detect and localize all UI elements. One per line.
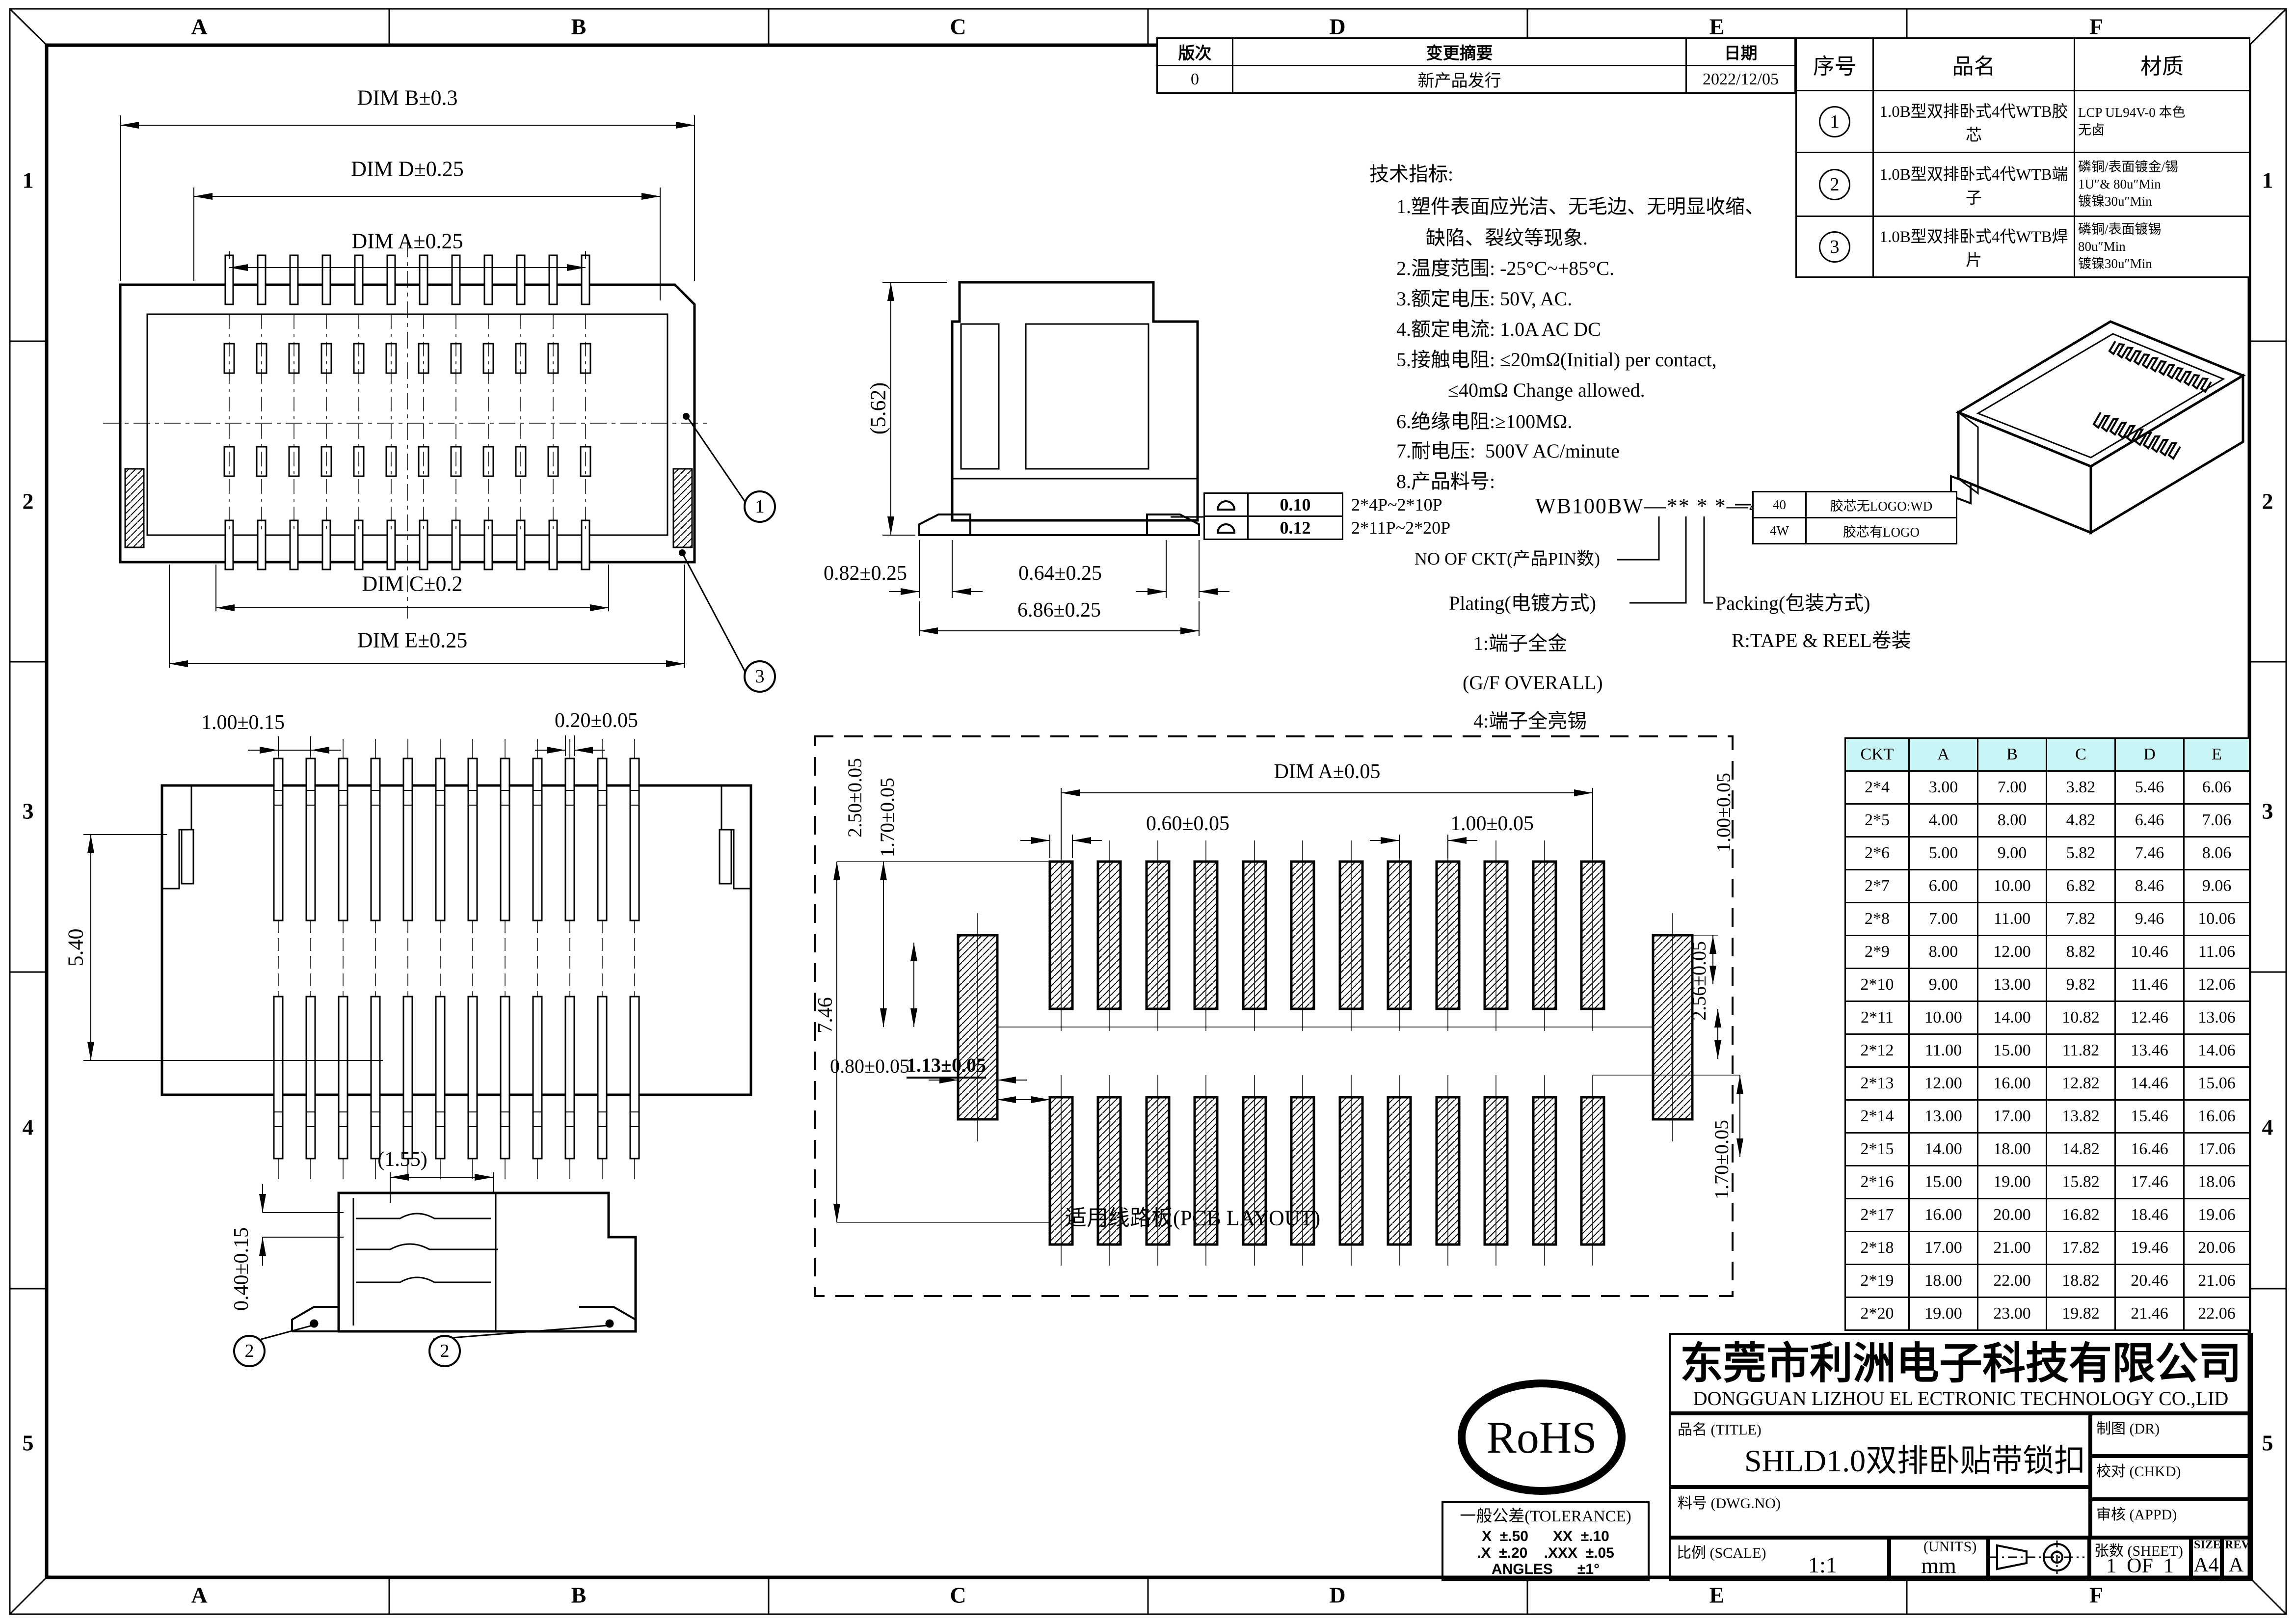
zone-letter-top: E — [1709, 14, 1725, 40]
zone-letter-bottom: A — [191, 1583, 207, 1609]
tolerance-line: X ±.50 XX ±.10 — [1482, 1528, 1609, 1545]
tolerance-title: 一般公差(TOLERANCE) — [1460, 1508, 1631, 1526]
rohs-logo: RoHS — [1458, 1380, 1626, 1495]
dim-label: DIM C±0.2 — [362, 572, 462, 597]
table-cell: 16.46 — [2115, 1133, 2184, 1166]
side-view-drawing — [919, 282, 1199, 535]
table-cell: 2*14 — [1845, 1100, 1909, 1133]
balloon-2: 2 — [428, 1335, 461, 1367]
dim-label: 0.40±0.15 — [230, 1227, 253, 1311]
tech-spec-line: 2.温度范围: -25°C~+85°C. — [1396, 257, 1614, 280]
zone-letter-top: A — [191, 14, 207, 40]
third-angle-projection-icon — [1988, 1538, 2086, 1576]
zone-letter-top: D — [1329, 14, 1345, 40]
table-cell: 2022/12/05 — [1686, 66, 1795, 93]
table-cell: 2*10 — [1845, 969, 1909, 1001]
dim-label: (5.62) — [866, 382, 891, 434]
table-cell: 14.06 — [2184, 1034, 2250, 1067]
table-cell: 14.82 — [2047, 1133, 2115, 1166]
chkd-label: 校对 (CHKD) — [2096, 1459, 2181, 1481]
zone-number-left: 1 — [23, 168, 34, 194]
table-cell: 2*16 — [1845, 1166, 1909, 1199]
table-cell: 2*5 — [1845, 804, 1909, 837]
tech-spec-line: 5.接触电阻: ≤20mΩ(Initial) per contact, — [1396, 349, 1717, 371]
table-cell: 22.00 — [1978, 1265, 2047, 1298]
top-view-drawing — [103, 241, 712, 619]
isometric-view-drawing — [1951, 322, 2243, 533]
table-cell: 15.00 — [1909, 1166, 1978, 1199]
table-cell: 11.46 — [2115, 969, 2184, 1001]
table-cell: 16.00 — [1978, 1067, 2047, 1100]
table-cell: 15.46 — [2115, 1100, 2184, 1133]
table-cell: 15.00 — [1978, 1034, 2047, 1067]
section-view-drawing — [292, 1193, 636, 1331]
engineering-drawing-sheet: A B C D E F A B C D E F 1 2 3 4 5 1 2 3 … — [0, 0, 2296, 1623]
table-header-cell: E — [2184, 738, 2250, 771]
dim-label: DIM A±0.05 — [1274, 760, 1381, 784]
table-cell: 15.82 — [2047, 1166, 2115, 1199]
table-cell: 11.06 — [2184, 936, 2250, 969]
table-cell: 12.00 — [1909, 1067, 1978, 1100]
table-cell: 13.82 — [2047, 1100, 2115, 1133]
table-row: 2*1413.0017.0013.8215.4616.06 — [1845, 1100, 2250, 1133]
tech-spec-line: 6.绝缘电阻:≥100MΩ. — [1396, 410, 1572, 433]
zone-number-left: 2 — [23, 489, 34, 515]
table-cell: 0 — [1157, 66, 1233, 93]
table-cell: 12.06 — [2184, 969, 2250, 1001]
section-view-dimensions — [261, 1172, 608, 1339]
table-cell: 新产品发行 — [1233, 66, 1686, 93]
table-cell: 6.06 — [2184, 771, 2250, 804]
zone-number-right: 1 — [2262, 168, 2273, 194]
profile-of-surface-icon — [1215, 498, 1237, 511]
table-header-cell: 变更摘要 — [1233, 38, 1686, 66]
table-cell: 19.82 — [2047, 1298, 2115, 1330]
dim-label: 1.70±0.05 — [876, 778, 899, 857]
table-cell: 2*19 — [1845, 1265, 1909, 1298]
table-cell: 2*17 — [1845, 1199, 1909, 1232]
table-cell: 20.46 — [2115, 1265, 2184, 1298]
zone-number-right: 4 — [2262, 1115, 2273, 1141]
table-cell: 9.00 — [1909, 969, 1978, 1001]
plating-option-1: 1:端子全金 — [1473, 632, 1567, 655]
table-cell: 10.46 — [2115, 936, 2184, 969]
table-row: 2*1615.0019.0015.8217.4618.06 — [1845, 1166, 2250, 1199]
table-cell: 21.06 — [2184, 1265, 2250, 1298]
dim-label: 1.13±0.05 — [907, 1054, 986, 1079]
revision-table: 版次 变更摘要 日期 0 新产品发行 2022/12/05 — [1156, 37, 1796, 94]
table-cell: 4.82 — [2047, 804, 2115, 837]
table-cell: 9.82 — [2047, 969, 2115, 1001]
tech-spec-line: 缺陷、裂纹等现象. — [1426, 227, 1588, 249]
table-row: 2*54.008.004.826.467.06 — [1845, 804, 2250, 837]
packing-label: Packing(包装方式) — [1715, 592, 1870, 615]
table-cell: 2*20 — [1845, 1298, 1909, 1330]
table-row: 2*1514.0018.0014.8216.4617.06 — [1845, 1133, 2250, 1166]
table-cell: 8.00 — [1978, 804, 2047, 837]
table-cell: 21.46 — [2115, 1298, 2184, 1330]
rohs-label: RoHS — [1487, 1411, 1597, 1463]
zone-number-right: 5 — [2262, 1431, 2273, 1457]
tech-spec-line: 1.塑件表面应光洁、无毛边、无明显收缩、 — [1396, 195, 1764, 218]
dim-label: (1.55) — [377, 1148, 427, 1171]
size-value: A4 — [2193, 1553, 2218, 1577]
tech-spec-line: 7.耐电压: 500V AC/minute — [1396, 440, 1620, 462]
table-cell: 7.06 — [2184, 804, 2250, 837]
company-name-cn: 东莞市利洲电子科技有限公司 — [1680, 1339, 2242, 1389]
table-cell: 18.00 — [1909, 1265, 1978, 1298]
zone-letter-top: C — [950, 14, 966, 40]
table-cell: 17.00 — [1909, 1232, 1978, 1265]
zone-letter-bottom: F — [2089, 1583, 2103, 1609]
table-cell: 8.82 — [2047, 936, 2115, 969]
table-cell: 18.82 — [2047, 1265, 2115, 1298]
table-row: 2*76.0010.006.828.469.06 — [1845, 870, 2250, 903]
coplanarity-range: 2*4P~2*10P — [1343, 492, 1442, 517]
table-header-cell: 序号 — [1796, 38, 1873, 91]
table-cell: 4W — [1753, 518, 1806, 544]
circled-number-icon: 3 — [1819, 231, 1850, 263]
table-cell: 14.46 — [2115, 1067, 2184, 1100]
table-cell: 4.00 — [1909, 804, 1978, 837]
table-cell: 16.82 — [2047, 1199, 2115, 1232]
zone-letter-bottom: C — [950, 1583, 966, 1609]
table-cell: 22.06 — [2184, 1298, 2250, 1330]
part-name: 1.0B型双排卧式4代WTB焊片 — [1873, 216, 2075, 277]
zone-letter-bottom: D — [1329, 1583, 1345, 1609]
table-cell: 7.00 — [1909, 903, 1978, 936]
dim-label: 0.82±0.25 — [824, 562, 907, 585]
table-row: 4W 胶芯有LOGO — [1753, 518, 1957, 544]
table-cell: 12.46 — [2115, 1001, 2184, 1034]
table-cell: 8.46 — [2115, 870, 2184, 903]
table-cell: 13.46 — [2115, 1034, 2184, 1067]
table-cell: 19.46 — [2115, 1232, 2184, 1265]
tolerance-block: 一般公差(TOLERANCE) X ±.50 XX ±.10 .X ±.20 .… — [1442, 1501, 1650, 1581]
dim-label: DIM A±0.25 — [351, 229, 463, 254]
plating-option-4: 4:端子全亮锡 — [1473, 710, 1587, 732]
table-row: 2*1211.0015.0011.8213.4614.06 — [1845, 1034, 2250, 1067]
table-cell: 14.00 — [1978, 1001, 2047, 1034]
zone-letter-top: F — [2089, 14, 2103, 40]
coplanarity-value: 0.10 — [1247, 492, 1343, 517]
table-cell: 19.00 — [1978, 1166, 2047, 1199]
table-row: 2*87.0011.007.829.4610.06 — [1845, 903, 2250, 936]
table-cell: 11.00 — [1909, 1034, 1978, 1067]
part-material: 磷铜/表面镀锡 80u″Min 镀镍30u″Min — [2075, 216, 2250, 277]
dim-label: 1.00±0.15 — [201, 711, 285, 734]
table-cell: 16.00 — [1909, 1199, 1978, 1232]
zone-number-right: 2 — [2262, 489, 2273, 515]
item-number: 2 — [1796, 153, 1873, 216]
table-cell: 2*12 — [1845, 1034, 1909, 1067]
table-cell: 10.06 — [2184, 903, 2250, 936]
coplanarity-value: 0.12 — [1247, 515, 1343, 540]
table-cell: 2*18 — [1845, 1232, 1909, 1265]
table-cell: 6.46 — [2115, 804, 2184, 837]
table-header-cell: 日期 — [1686, 38, 1795, 66]
coplanarity-range: 2*11P~2*20P — [1343, 515, 1450, 540]
table-cell: 17.06 — [2184, 1133, 2250, 1166]
dr-label: 制图 (DR) — [2096, 1416, 2160, 1438]
tech-spec-line: 3.额定电压: 50V, AC. — [1396, 288, 1572, 310]
appd-label: 审核 (APPD) — [2096, 1502, 2177, 1524]
logo-option-table: 40 胶芯无LOGO:WD 4W 胶芯有LOGO — [1752, 491, 1957, 544]
table-header-cell: 材质 — [2075, 38, 2250, 91]
ckt-label: NO OF CKT(产品PIN数) — [1415, 549, 1600, 569]
table-cell: 19.06 — [2184, 1199, 2250, 1232]
table-row: 2*2019.0023.0019.8221.4622.06 — [1845, 1298, 2250, 1330]
pcb-layout-caption: 适用线路板(PCB LAYOUT) — [1065, 1206, 1320, 1231]
table-cell: 10.82 — [2047, 1001, 2115, 1034]
table-row: 2*1817.0021.0017.8219.4620.06 — [1845, 1232, 2250, 1265]
item-number: 3 — [1796, 216, 1873, 277]
table-cell: 2*8 — [1845, 903, 1909, 936]
dim-label: DIM B±0.3 — [357, 86, 457, 111]
table-row: CKT A B C D E — [1845, 738, 2250, 771]
table-cell: 10.00 — [1978, 870, 2047, 903]
table-row: 0 新产品发行 2022/12/05 — [1157, 66, 1795, 93]
table-cell: 17.00 — [1978, 1100, 2047, 1133]
table-cell: 18.06 — [2184, 1166, 2250, 1199]
table-cell: 19.00 — [1909, 1298, 1978, 1330]
table-cell: 13.06 — [2184, 1001, 2250, 1034]
table-header-cell: C — [2047, 738, 2115, 771]
table-cell: 5.82 — [2047, 837, 2115, 870]
dim-label: 2.50±0.05 — [844, 758, 866, 838]
table-cell: 2*7 — [1845, 870, 1909, 903]
dim-label: 5.40 — [64, 929, 89, 967]
table-cell: 40 — [1753, 492, 1806, 518]
table-cell: 16.06 — [2184, 1100, 2250, 1133]
table-row: 2*1918.0022.0018.8220.4621.06 — [1845, 1265, 2250, 1298]
zone-letter-bottom: B — [571, 1583, 587, 1609]
table-row: 40 胶芯无LOGO:WD — [1753, 492, 1957, 518]
table-row: 1 1.0B型双排卧式4代WTB胶芯 LCP UL94V-0 本色 无卤 — [1796, 91, 2250, 153]
table-cell: 17.46 — [2115, 1166, 2184, 1199]
table-cell: 23.00 — [1978, 1298, 2047, 1330]
table-row: 序号 品名 材质 — [1796, 38, 2250, 91]
bottom-view-drawing — [162, 739, 751, 1179]
table-cell: 2*6 — [1845, 837, 1909, 870]
table-row: 2*1110.0014.0010.8212.4613.06 — [1845, 1001, 2250, 1034]
table-cell: 5.46 — [2115, 771, 2184, 804]
part-material: 磷铜/表面镀金/锡 1U″& 80u″Min 镀镍30u″Min — [2075, 153, 2250, 216]
table-row: 3 1.0B型双排卧式4代WTB焊片 磷铜/表面镀锡 80u″Min 镀镍30u… — [1796, 216, 2250, 277]
table-header-cell: A — [1909, 738, 1978, 771]
table-cell: 7.46 — [2115, 837, 2184, 870]
table-cell: 5.00 — [1909, 837, 1978, 870]
table-cell: 20.06 — [2184, 1232, 2250, 1265]
table-header-cell: 版次 — [1157, 38, 1233, 66]
part-material: LCP UL94V-0 本色 无卤 — [2075, 91, 2250, 153]
table-cell: 6.00 — [1909, 870, 1978, 903]
tech-specs-title: 技术指标: — [1369, 163, 1453, 186]
table-cell: 3.00 — [1909, 771, 1978, 804]
table-cell: 7.82 — [2047, 903, 2115, 936]
table-cell: 2*4 — [1845, 771, 1909, 804]
table-cell: 2*11 — [1845, 1001, 1909, 1034]
dim-label: 0.20±0.05 — [555, 709, 638, 732]
units-value: mm — [1921, 1553, 1956, 1579]
table-cell: 17.82 — [2047, 1232, 2115, 1265]
table-cell: 18.00 — [1978, 1133, 2047, 1166]
dim-label: DIM D±0.25 — [351, 157, 463, 182]
table-row: 2 1.0B型双排卧式4代WTB端子 磷铜/表面镀金/锡 1U″& 80u″Mi… — [1796, 153, 2250, 216]
dim-label: 0.64±0.25 — [1018, 562, 1102, 585]
dim-label: DIM E±0.25 — [357, 628, 468, 653]
table-row: 版次 变更摘要 日期 — [1157, 38, 1795, 66]
dim-label: 1.00±0.05 — [1450, 812, 1534, 836]
table-header-cell: 品名 — [1873, 38, 2075, 91]
table-header-cell: B — [1978, 738, 2047, 771]
table-cell: 2*9 — [1845, 936, 1909, 969]
title-label: 品名 (TITLE) — [1678, 1417, 1762, 1439]
tech-spec-line: 4.额定电流: 1.0A AC DC — [1396, 318, 1601, 341]
table-cell: 2*15 — [1845, 1133, 1909, 1166]
table-header-cell: D — [2115, 738, 2184, 771]
zone-letter-top: B — [571, 14, 587, 40]
table-cell: 20.00 — [1978, 1199, 2047, 1232]
table-cell: 8.06 — [2184, 837, 2250, 870]
balloon-2: 2 — [233, 1335, 266, 1367]
balloon-1: 1 — [744, 490, 776, 523]
part-name: 1.0B型双排卧式4代WTB胶芯 — [1873, 91, 2075, 153]
table-header-cell: CKT — [1845, 738, 1909, 771]
dim-label: 0.60±0.05 — [1146, 812, 1229, 836]
table-cell: 13.00 — [1909, 1100, 1978, 1133]
profile-of-surface-icon — [1215, 521, 1237, 534]
scale-value: 1:1 — [1808, 1552, 1837, 1578]
table-cell: 胶芯无LOGO:WD — [1806, 492, 1957, 518]
zone-number-left: 5 — [23, 1431, 34, 1457]
tolerance-line: ANGLES ±1° — [1492, 1561, 1600, 1578]
coplanarity-callout: 0.10 2*4P~2*10P 0.12 2*11P~2*20P — [1203, 492, 1450, 540]
table-cell: 15.06 — [2184, 1067, 2250, 1100]
tech-spec-line: 8.产品料号: — [1396, 470, 1495, 493]
zone-number-left: 3 — [23, 799, 34, 825]
circled-number-icon: 2 — [1819, 169, 1850, 200]
scale-label: 比例 (SCALE) — [1677, 1541, 1766, 1562]
table-cell: 9.46 — [2115, 903, 2184, 936]
dim-label: 6.86±0.25 — [1017, 598, 1101, 622]
dwg-no-label: 料号 (DWG.NO) — [1678, 1491, 1781, 1513]
tech-spec-line: ≤40mΩ Change allowed. — [1448, 379, 1645, 402]
table-row: 2*1716.0020.0016.8218.4619.06 — [1845, 1199, 2250, 1232]
table-row: 2*98.0012.008.8210.4611.06 — [1845, 936, 2250, 969]
table-row: 2*43.007.003.825.466.06 — [1845, 771, 2250, 804]
rev-label: REV — [2225, 1539, 2250, 1552]
zone-number-right: 3 — [2262, 799, 2273, 825]
parts-material-table: 序号 品名 材质 1 1.0B型双排卧式4代WTB胶芯 LCP UL94V-0 … — [1795, 37, 2250, 278]
item-number: 1 — [1796, 91, 1873, 153]
circled-number-icon: 1 — [1819, 106, 1850, 137]
table-row: 2*65.009.005.827.468.06 — [1845, 837, 2250, 870]
dim-label: 0.80±0.05 — [830, 1055, 909, 1078]
part-name: 1.0B型双排卧式4代WTB端子 — [1873, 153, 2075, 216]
table-cell: 10.00 — [1909, 1001, 1978, 1034]
table-row: 2*1312.0016.0012.8214.4615.06 — [1845, 1067, 2250, 1100]
zone-letter-bottom: E — [1709, 1583, 1725, 1609]
table-cell: 9.00 — [1978, 837, 2047, 870]
plating-option-1b: (G/F OVERALL) — [1463, 672, 1603, 694]
part-number-code: WB100BW—** * *—4* — [1535, 494, 1773, 519]
table-cell: 11.00 — [1978, 903, 2047, 936]
table-cell: 9.06 — [2184, 870, 2250, 903]
dim-label: 2.56±0.05 — [1688, 941, 1710, 1021]
ckt-dimension-table: CKT A B C D E 2*43.007.003.825.466.062*5… — [1844, 737, 2250, 1331]
table-cell: 2*13 — [1845, 1067, 1909, 1100]
table-cell: 12.00 — [1978, 936, 2047, 969]
dim-label: 7.46 — [814, 997, 837, 1033]
balloon-3: 3 — [744, 660, 776, 693]
table-cell: 胶芯有LOGO — [1806, 518, 1957, 544]
table-cell: 11.82 — [2047, 1034, 2115, 1067]
table-cell: 14.00 — [1909, 1133, 1978, 1166]
part-number-leaders — [1617, 505, 1751, 603]
table-cell: 13.00 — [1978, 969, 2047, 1001]
zone-number-left: 4 — [23, 1115, 34, 1141]
dim-label: 1.00±0.05 — [1712, 773, 1735, 852]
packing-option: R:TAPE & REEL卷装 — [1732, 629, 1911, 652]
drawing-title: SHLD1.0双排卧贴带锁扣 — [1744, 1443, 2085, 1479]
sheet-value: 1 OF 1 — [2106, 1554, 2174, 1578]
table-cell: 12.82 — [2047, 1067, 2115, 1100]
size-label: SIZE — [2194, 1539, 2221, 1552]
table-cell: 21.00 — [1978, 1232, 2047, 1265]
table-cell: 8.00 — [1909, 936, 1978, 969]
tolerance-line: .X ±.20 .XXX ±.05 — [1477, 1545, 1614, 1562]
plating-label: Plating(电镀方式) — [1449, 592, 1596, 615]
table-cell: 7.00 — [1978, 771, 2047, 804]
table-cell: 6.82 — [2047, 870, 2115, 903]
company-name-en: DONGGUAN LIZHOU EL ECTRONIC TECHNOLOGY C… — [1693, 1387, 2229, 1410]
table-row: 2*109.0013.009.8211.4612.06 — [1845, 969, 2250, 1001]
table-cell: 3.82 — [2047, 771, 2115, 804]
dim-label: 1.70±0.05 — [1710, 1120, 1733, 1199]
table-cell: 18.46 — [2115, 1199, 2184, 1232]
rev-value: A — [2229, 1553, 2243, 1577]
